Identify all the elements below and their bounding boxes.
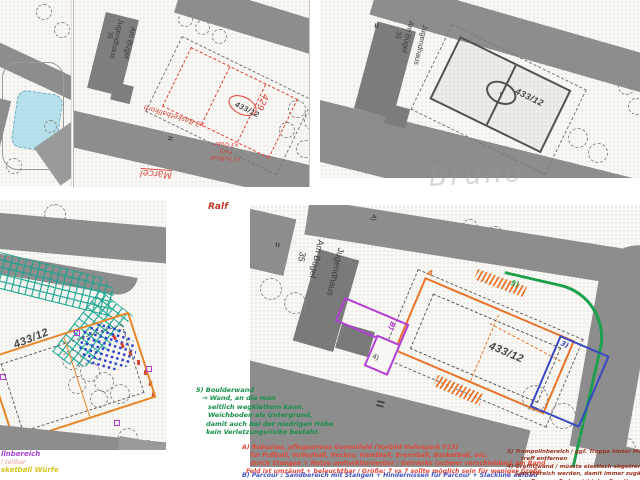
purple-l-part (335, 297, 410, 348)
tree-icon (212, 29, 227, 44)
house-number-label: 35 (296, 251, 308, 263)
label-4-top: 4) (369, 214, 377, 221)
tree-icon (462, 219, 478, 235)
author-name-marcel: Marcel (134, 166, 179, 180)
street-band-top (304, 205, 640, 289)
tree-icon (522, 385, 548, 411)
author-name-ralf: Ralf (208, 202, 228, 212)
tree-icon (36, 4, 52, 20)
tree-icon (602, 395, 624, 417)
tree-icon (550, 403, 576, 429)
tree-icon (458, 16, 472, 30)
tree-icon (578, 420, 602, 444)
tree-icon (512, 236, 528, 252)
tree-icon (284, 292, 306, 314)
green-note-line: kein Verletzungsrisiko besteht. (196, 428, 334, 436)
panel-top-left (0, 0, 72, 186)
red-field-line (201, 67, 230, 125)
tree-icon (110, 384, 130, 404)
street-corner (115, 436, 166, 450)
tree-icon (618, 298, 636, 316)
green-note-boulderwand: 5) Boulderwand → Wand, an die man seitli… (196, 386, 334, 437)
panel-top-middle: Jugendhaus Am Bügel 35 433/12 429 = x3 B… (73, 0, 310, 187)
blue-note-line: B) Parcour : Sandbereich mit Stangen + H… (242, 472, 538, 480)
red-note-line: für Fußball, Volleyball, Hockey, Handbal… (242, 452, 546, 460)
tree-icon (514, 28, 528, 42)
blue-note-parcour: B) Parcour : Sandbereich mit Stangen + H… (242, 472, 538, 480)
green-note-line: damit auch bei der niedrigen Höhe (196, 420, 334, 428)
maroon-note-line: 4) Graffitiwand / müsste elastisch abget… (507, 464, 640, 471)
tree-icon (6, 158, 22, 174)
tree-icon (304, 112, 310, 130)
author-name-bruno: Bruno (428, 157, 525, 193)
green-note-line: Weichboden als Untergrund, (196, 411, 334, 419)
tree-icon (62, 350, 82, 370)
red-note-line: A) Robustes, pflegearmes Gummifeld (Vorb… (242, 444, 546, 452)
tree-icon (537, 248, 553, 264)
green-note-line: 5) Boulderwand (196, 386, 334, 394)
tree-icon (44, 120, 57, 133)
tree-icon (568, 128, 588, 148)
tree-icon (260, 278, 282, 300)
tree-icon (606, 58, 623, 75)
cutoff-note-yellow: sketball Würfe (1, 466, 59, 474)
tree-icon (487, 226, 503, 242)
purple-corner-mark (114, 420, 120, 426)
purple-corner-mark (0, 374, 6, 380)
equals-mark: = (371, 22, 382, 29)
tree-icon (618, 78, 635, 95)
cutoff-note-purple: llnbereich (1, 450, 40, 458)
tree-icon (90, 390, 108, 408)
tree-icon (628, 98, 640, 115)
tree-icon (296, 140, 310, 158)
tree-icon (54, 22, 70, 38)
tree-icon (476, 10, 490, 24)
maroon-note-line: treff entfernen (507, 456, 640, 463)
maroon-note-line: Sportbereich werden, damit immer zugängl… (507, 471, 640, 478)
label-5: 5) (510, 279, 520, 289)
building-name-label: Jugendhaus (412, 24, 430, 66)
purple-corner-mark (146, 366, 152, 372)
green-note-line: → Wand, an die man (196, 394, 334, 402)
label-3: 3) (559, 339, 570, 350)
tree-icon (288, 100, 306, 118)
red-note-line: durch Stangen + Netze umfunktionierbar /… (242, 460, 546, 468)
tree-icon (279, 122, 295, 138)
building-footprint (110, 82, 134, 104)
tree-icon (588, 143, 608, 163)
purple-corner-mark (74, 330, 80, 336)
panel-top-right: = 35 Am Bügel Jugendhaus 433/12 (320, 0, 640, 178)
panel-bottom-left: 433/12 (0, 200, 166, 450)
cutoff-note-red: l teilbar (1, 458, 26, 466)
tree-icon (68, 376, 86, 394)
maroon-note-line: 3) Trampolinbereich / ggf. Treppe hinter… (507, 449, 640, 456)
tree-icon (562, 259, 578, 275)
green-note-line: seitlich wegklettern kann. (196, 403, 334, 411)
tree-icon (178, 12, 193, 27)
tree-icon (534, 40, 548, 54)
tree-icon (195, 20, 210, 35)
tree-icon (494, 18, 508, 32)
note-field: x1 Fußball Feld x3 Quer (206, 139, 245, 162)
scan-collage: Jugendhaus Am Bügel 35 433/12 429 = x3 B… (0, 0, 640, 480)
maroon-notes: 3) Trampolinbereich / ggf. Treppe hinter… (507, 449, 640, 480)
